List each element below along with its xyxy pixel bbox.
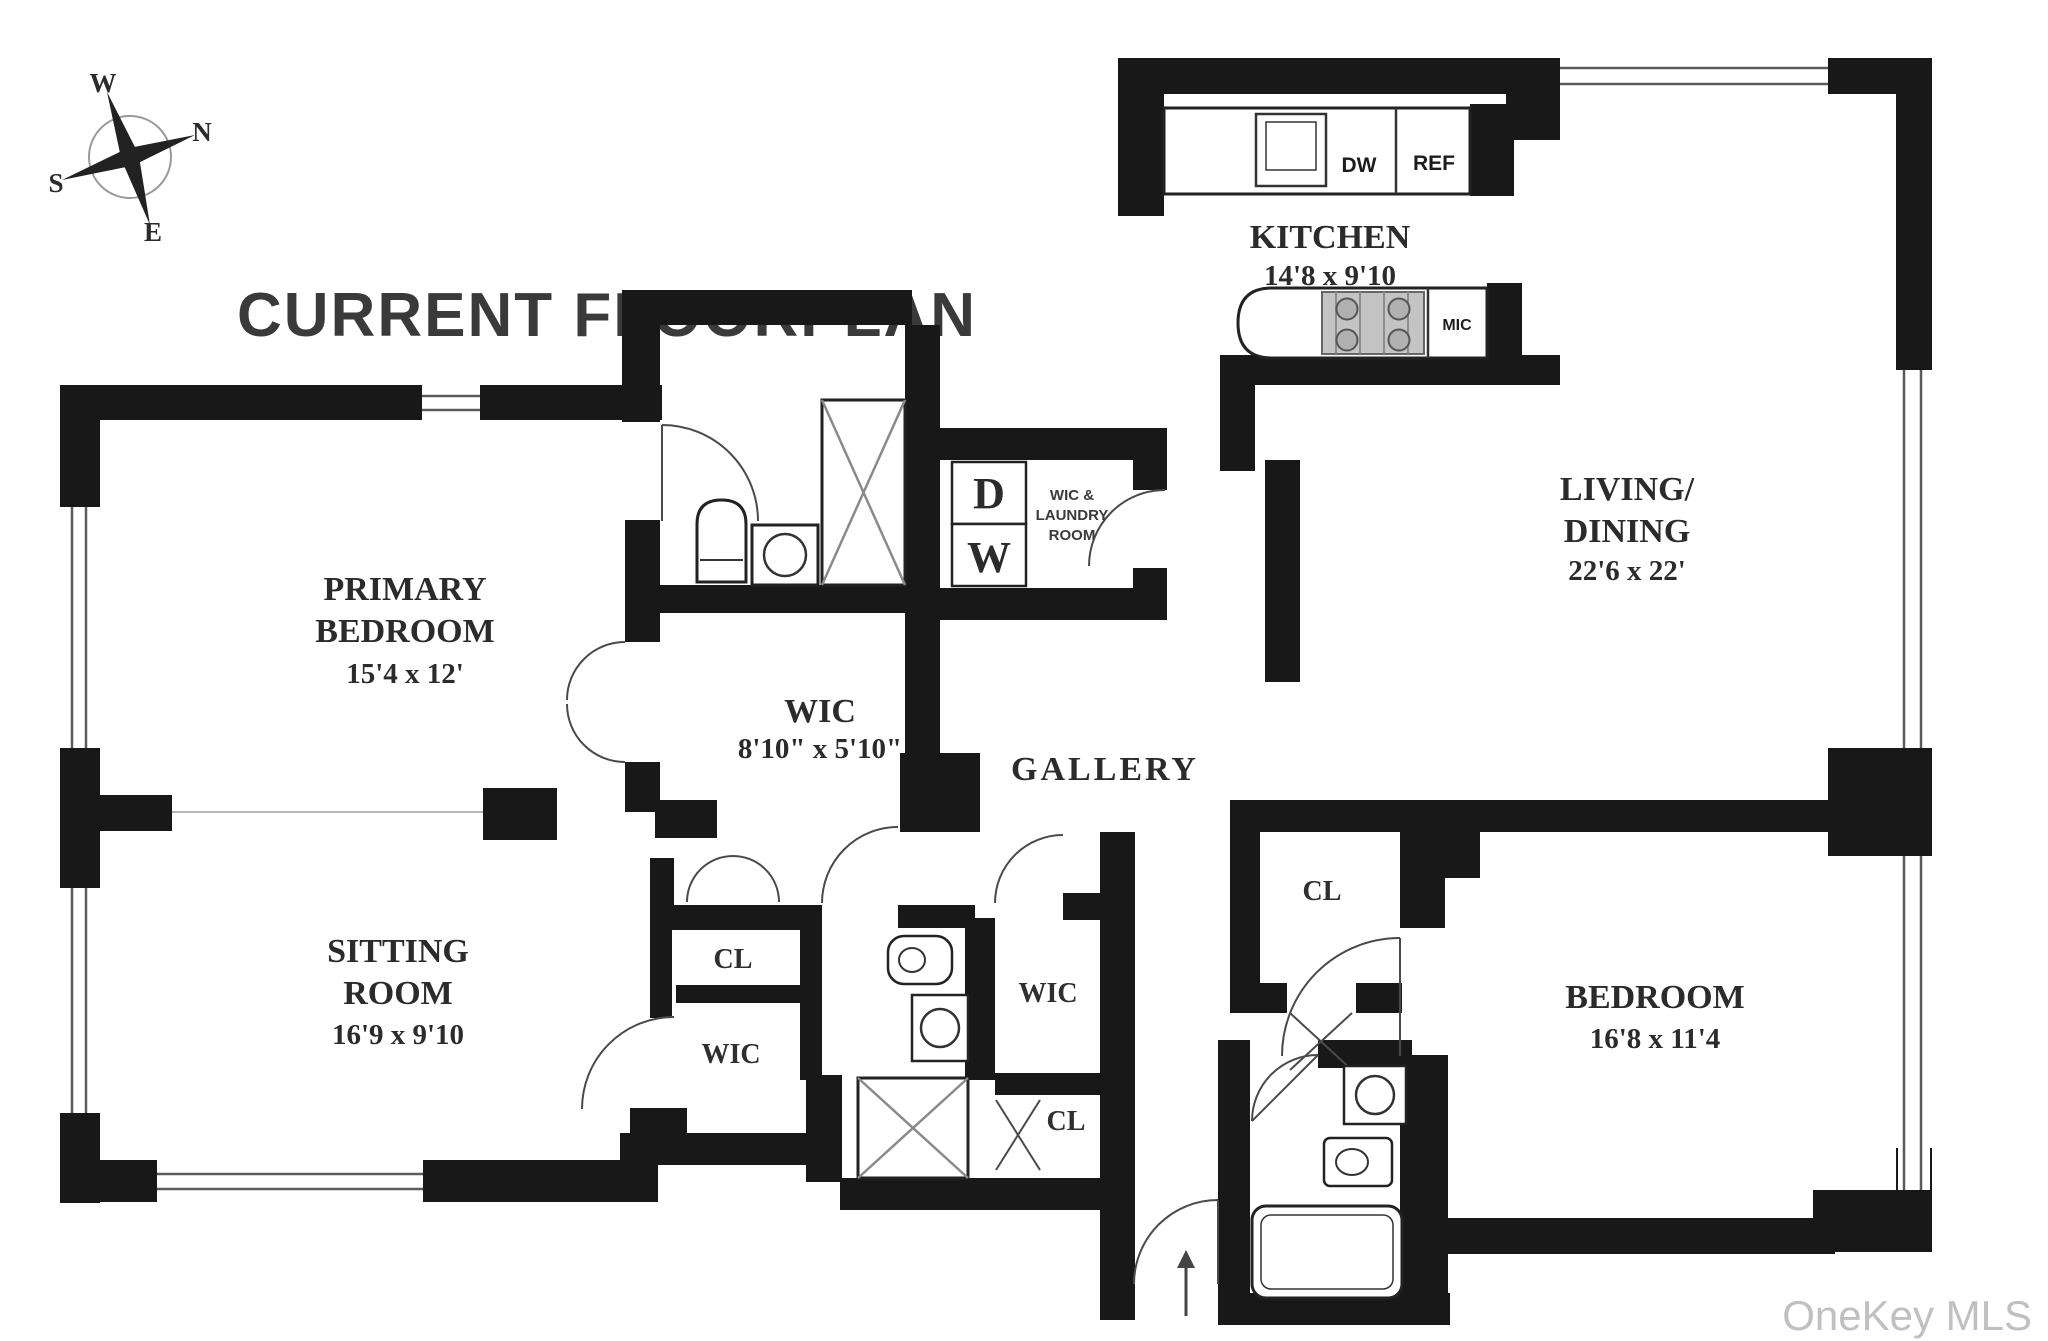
laundry-label3: ROOM [1049,527,1096,544]
dryer-label: D [973,469,1005,518]
sitting-room-label: SITTING [327,933,469,970]
bedroom-label: BEDROOM [1565,979,1744,1016]
living-dining-label2: DINING [1564,513,1691,550]
walls [60,58,1932,1325]
bedroom-dims: 16'8 x 11'4 [1590,1023,1721,1055]
compass-label-west: W [90,68,117,98]
closet-label-cl-hall: CL [1047,1106,1086,1137]
closet-label-cl-bedroom: CL [1303,876,1342,907]
living-dining-label: LIVING/ [1560,471,1695,508]
kitchen-counter [1164,108,1470,194]
compass-rose: W N S E [48,68,212,247]
compass-label-east: E [144,217,162,247]
compass-label-south: S [48,168,63,198]
laundry-label2: LAUNDRY [1036,507,1109,524]
microwave-label: MIC [1442,317,1472,334]
compass-point-south [62,148,133,180]
watermark: OneKey MLS [1782,1292,2032,1339]
laundry-label: WIC & [1050,487,1094,504]
wic-main-dims: 8'10" x 5'10" [738,733,902,765]
kitchen-dims: 14'8 x 9'10 [1264,260,1396,292]
primary-bedroom-label2: BEDROOM [315,613,494,650]
closet-label-wic-hall: WIC [1018,978,1077,1009]
living-dining-dims: 22'6 x 22' [1568,555,1686,587]
washer-label: W [967,533,1011,582]
toilet-icon [697,500,746,582]
bathtub-icon [1252,1206,1402,1298]
compass-label-north: N [192,117,212,147]
toilet-icon [1324,1138,1392,1186]
compass-point-north [127,135,195,166]
sink-icon [1344,1066,1406,1124]
primary-bedroom-label: PRIMARY [323,571,486,608]
refrigerator-label: REF [1413,152,1455,175]
toilet-icon [888,936,952,984]
sitting-room-dims: 16'9 x 9'10 [332,1019,464,1051]
closet-label-wic-sitting: WIC [701,1039,760,1070]
sitting-room-label2: ROOM [343,975,453,1012]
closet-label-cl-sitting: CL [714,944,753,975]
entry-arrow-icon [1177,1250,1195,1316]
floorplan-screenshot: W N S E CURRENT FLOORPLAN [0,0,2048,1341]
dishwasher-label: DW [1342,154,1377,177]
wic-main-label: WIC [784,693,856,730]
gallery-label: GALLERY [1011,751,1199,788]
primary-bedroom-dims: 15'4 x 12' [346,658,464,690]
kitchen-label: KITCHEN [1250,219,1411,256]
